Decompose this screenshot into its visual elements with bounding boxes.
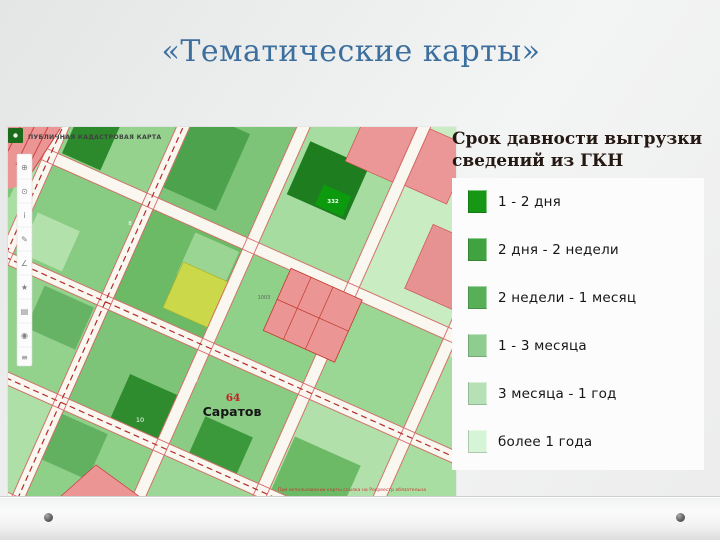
slide-title: «Тематические карты»: [0, 34, 702, 69]
draw-icon[interactable]: ✎: [21, 235, 28, 244]
legend-swatch: [468, 430, 487, 453]
print-icon[interactable]: ▤: [21, 307, 29, 316]
search-icon[interactable]: ⊙: [21, 187, 28, 196]
legend-swatch: [468, 190, 487, 213]
legend-heading: Срок давности выгрузки сведений из ГКН: [452, 128, 704, 172]
menu-icon[interactable]: ≡: [21, 353, 28, 362]
pkk-logo-mark: [13, 133, 17, 137]
legend-swatch: [468, 286, 487, 309]
legend-swatch: [468, 334, 487, 357]
legend-label: 1 - 3 месяца: [498, 338, 587, 354]
parcel-label: 0: [194, 378, 198, 384]
legend-item: 1 - 2 дня: [468, 190, 636, 213]
legend-label: 3 месяца - 1 год: [498, 386, 617, 402]
legend-swatch: [468, 238, 487, 261]
parcel-label: 10: [136, 416, 144, 424]
legend-list: 1 - 2 дня 2 дня - 2 недели 2 недели - 1 …: [468, 190, 636, 453]
legend-item: 2 дня - 2 недели: [468, 238, 636, 261]
legend-label: 1 - 2 дня: [498, 194, 561, 210]
footer-dot-left: [44, 513, 53, 522]
legend-label: 2 дня - 2 недели: [498, 242, 619, 258]
legend-swatch: [468, 382, 487, 405]
favorites-icon[interactable]: ★: [21, 283, 28, 292]
legend-item: 2 недели - 1 месяц: [468, 286, 636, 309]
presentation-slide: «Тематические карты»: [0, 0, 720, 540]
legend-item: 1 - 3 месяца: [468, 334, 636, 357]
legend-label: более 1 года: [498, 434, 592, 450]
legend-item: 3 месяца - 1 год: [468, 382, 636, 405]
slide-footer: [0, 496, 720, 540]
legend-label: 2 недели - 1 месяц: [498, 290, 636, 306]
parcel-label: 8: [128, 221, 132, 227]
parcel-label: 1003: [258, 295, 271, 301]
globe-icon[interactable]: ⊕: [21, 163, 28, 172]
city-label: Саратов: [203, 404, 262, 419]
footer-dot-right: [676, 513, 685, 522]
measure-icon[interactable]: ∠: [21, 259, 28, 268]
cadastral-map[interactable]: ПУБЛИЧНАЯ КАДАСТРОВАЯ КАРТА ⊕ ⊙ i ✎ ∠ ★ …: [8, 127, 456, 497]
map-toolbar: ⊕ ⊙ i ✎ ∠ ★ ▤ ◉ ≡: [17, 154, 32, 366]
cadastral-map-canvas[interactable]: ПУБЛИЧНАЯ КАДАСТРОВАЯ КАРТА ⊕ ⊙ i ✎ ∠ ★ …: [8, 127, 456, 497]
legend-item: более 1 года: [468, 430, 636, 453]
region-code-label: 64: [226, 392, 241, 404]
info-icon[interactable]: i: [23, 211, 25, 220]
pkk-header-title: ПУБЛИЧНАЯ КАДАСТРОВАЯ КАРТА: [28, 134, 161, 141]
map-attribution: При использовании карты ссылка на Росрее…: [278, 487, 426, 493]
layers-icon[interactable]: ◉: [21, 331, 28, 340]
parcel-label: 332: [327, 199, 339, 205]
